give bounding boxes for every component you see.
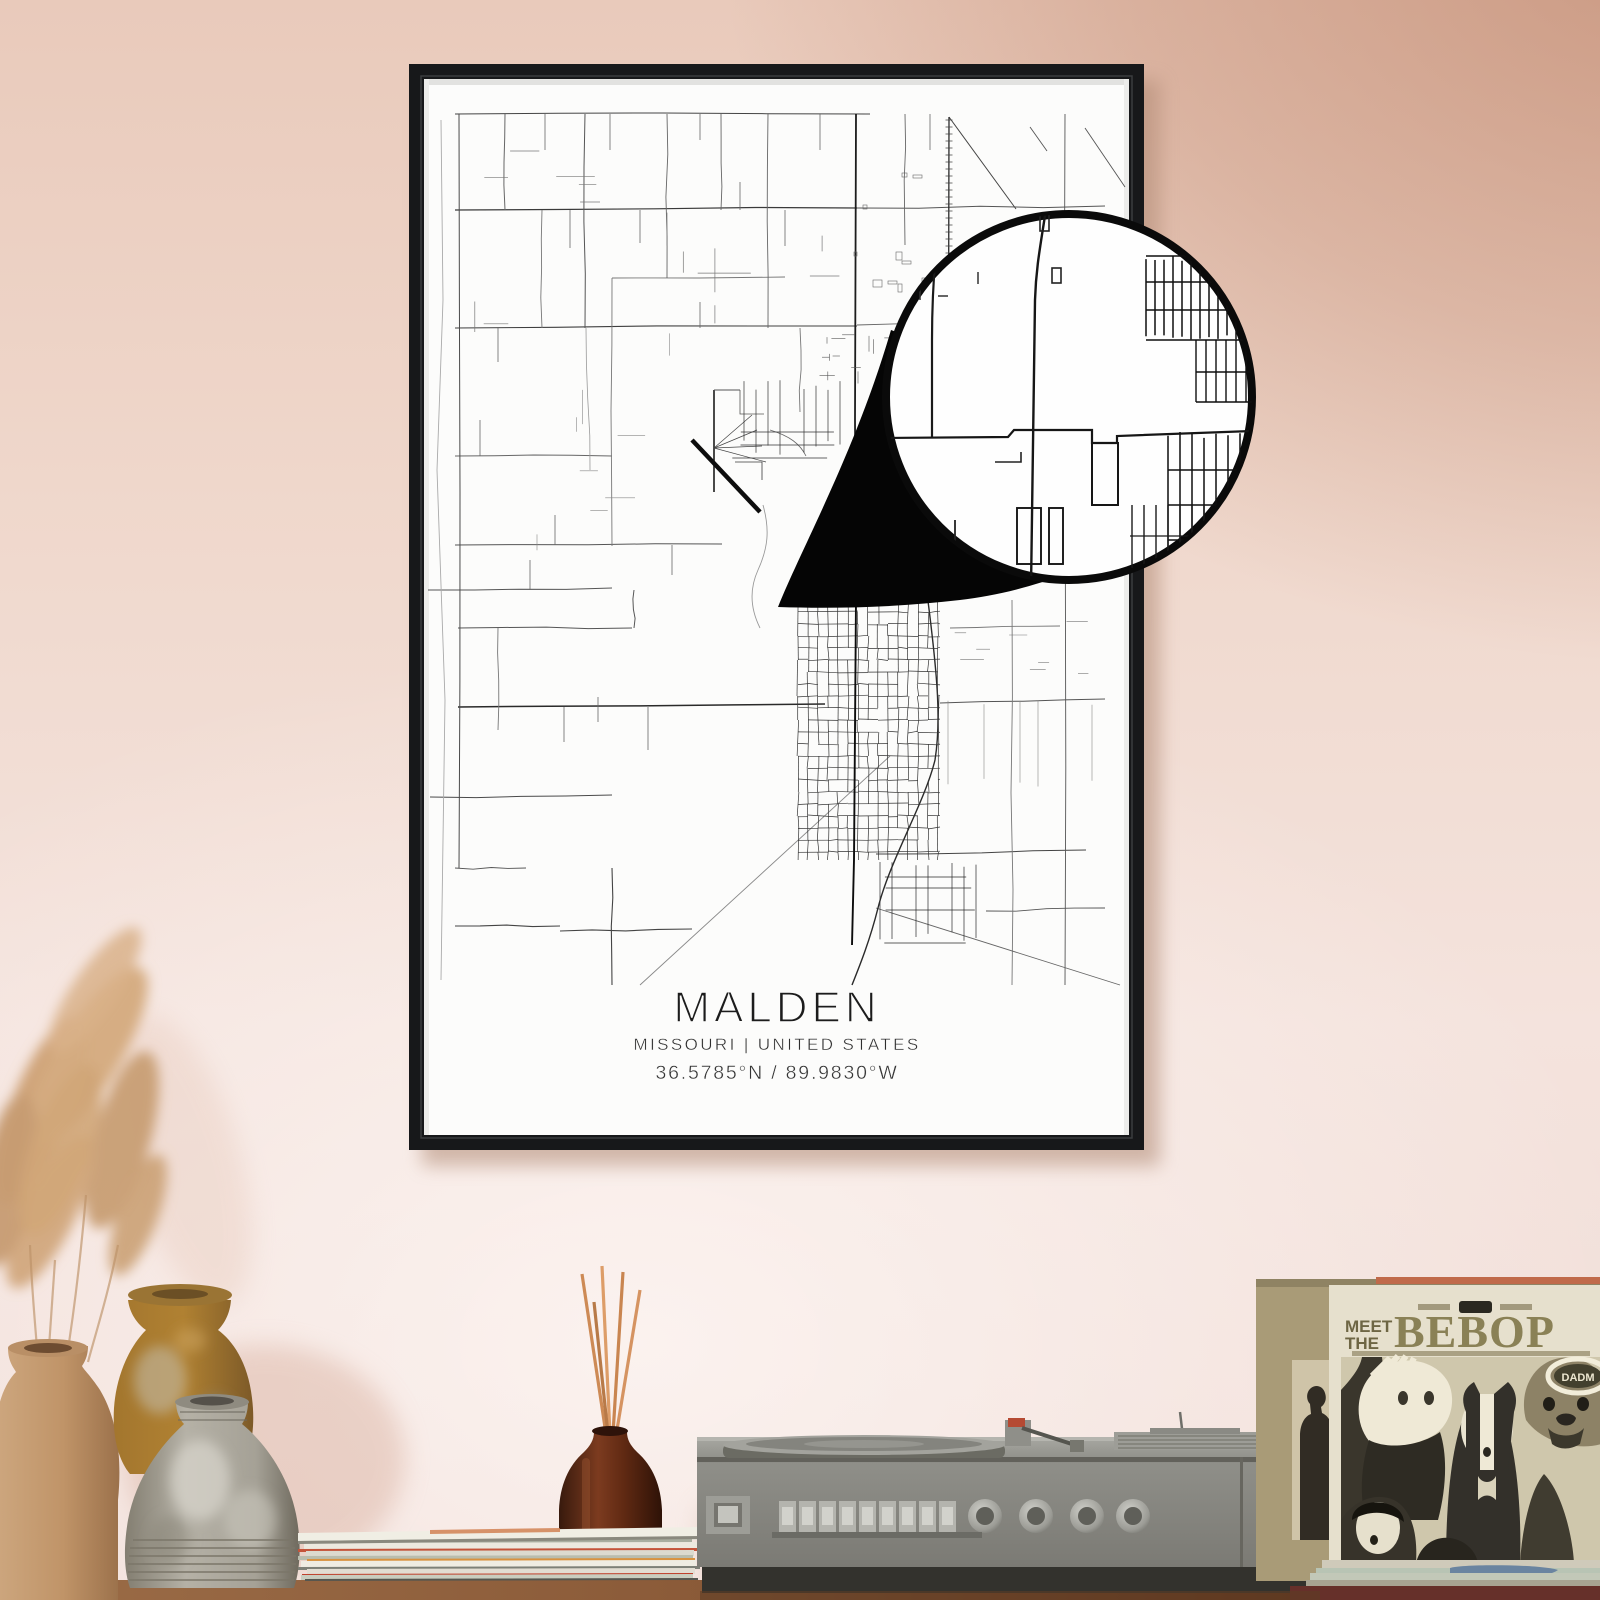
svg-text:MISSOURI | UNITED STATES: MISSOURI | UNITED STATES bbox=[633, 1035, 920, 1054]
svg-text:DADM: DADM bbox=[1562, 1372, 1595, 1384]
svg-text:36.5785°N / 89.9830°W: 36.5785°N / 89.9830°W bbox=[655, 1062, 898, 1084]
svg-text:BEBOP: BEBOP bbox=[1394, 1306, 1555, 1357]
svg-text:MALDEN: MALDEN bbox=[673, 983, 880, 1032]
svg-text:THE: THE bbox=[1345, 1334, 1379, 1353]
